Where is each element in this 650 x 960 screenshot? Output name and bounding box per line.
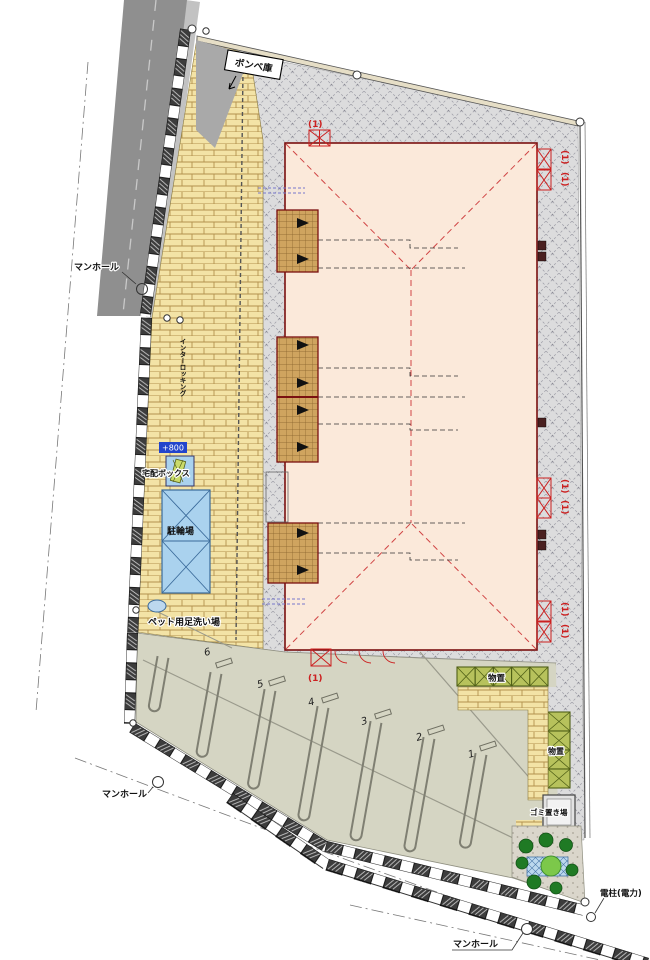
power-pole-icon bbox=[587, 913, 596, 922]
manhole-icon bbox=[153, 777, 164, 788]
leader-line bbox=[148, 787, 153, 793]
power-pole-annotation: 電柱(電力) bbox=[587, 888, 642, 922]
tree-icon bbox=[560, 839, 573, 852]
tree-icon bbox=[550, 882, 562, 894]
shed-cell bbox=[512, 667, 530, 686]
delivery-box-label: 宅配ボックス bbox=[142, 468, 190, 478]
survey-point bbox=[353, 71, 361, 79]
pet-wash-label: ペット用足洗い場 bbox=[148, 616, 220, 628]
meter-box bbox=[538, 541, 546, 550]
unit-label: (1) bbox=[559, 500, 569, 515]
manhole-icon bbox=[522, 924, 533, 935]
storage-row-label: 物置 bbox=[488, 673, 506, 684]
gravel-patch bbox=[548, 687, 580, 712]
east-fence-line2 bbox=[585, 122, 590, 838]
survey-point bbox=[576, 118, 584, 126]
unit-label: (1) bbox=[559, 624, 569, 639]
entrance-porch-south bbox=[268, 523, 318, 583]
site-plan-page: 6 5 4 3 2 1 bbox=[0, 0, 650, 960]
shed-cell bbox=[548, 769, 570, 788]
meter-box bbox=[538, 252, 546, 261]
survey-point bbox=[203, 28, 209, 34]
power-pole-label: 電柱(電力) bbox=[600, 888, 642, 899]
tree-icon bbox=[527, 875, 541, 889]
survey-point bbox=[581, 898, 589, 906]
level-mark-badge: +800 bbox=[159, 442, 187, 453]
garbage-label: ゴミ置き場 bbox=[530, 807, 568, 817]
leader-line bbox=[595, 898, 604, 913]
unit-label: (1) bbox=[559, 479, 569, 494]
paving-note-label: インターロッキング bbox=[178, 338, 186, 398]
tree-icon bbox=[519, 839, 533, 853]
unit-label: (1) bbox=[559, 172, 569, 187]
survey-point bbox=[164, 315, 170, 321]
main-building bbox=[285, 143, 537, 650]
manhole-label: マンホール bbox=[453, 939, 498, 950]
bicycle-parking-label: 駐輪場 bbox=[167, 525, 194, 537]
shed-cell bbox=[457, 667, 475, 686]
bicycle-parking bbox=[162, 490, 210, 593]
site-plan-drawing: 6 5 4 3 2 1 bbox=[0, 0, 650, 960]
manhole-label: マンホール bbox=[102, 789, 147, 800]
meter-box bbox=[538, 530, 546, 539]
meter-box bbox=[538, 418, 546, 427]
storage-column-label: 物置 bbox=[548, 746, 564, 756]
tree-icon bbox=[566, 864, 578, 876]
shed-cell bbox=[548, 712, 570, 731]
shed-cell bbox=[530, 667, 548, 686]
survey-point bbox=[133, 607, 139, 613]
level-mark-text: +800 bbox=[162, 444, 184, 453]
unit-label: (1) bbox=[308, 120, 323, 130]
tree-icon bbox=[516, 857, 528, 869]
tree-light-icon bbox=[541, 856, 561, 876]
pet-wash-basin-icon bbox=[148, 600, 166, 612]
manhole-label: マンホール bbox=[74, 262, 119, 273]
survey-point bbox=[177, 317, 183, 323]
survey-point bbox=[188, 25, 196, 33]
unit-label: (1) bbox=[559, 602, 569, 617]
unit-label: (1) bbox=[559, 150, 569, 165]
unit-label: (1) bbox=[308, 674, 323, 684]
meter-box bbox=[538, 241, 546, 250]
survey-point bbox=[130, 720, 136, 726]
tree-icon bbox=[539, 833, 553, 847]
building-outline bbox=[285, 143, 537, 650]
